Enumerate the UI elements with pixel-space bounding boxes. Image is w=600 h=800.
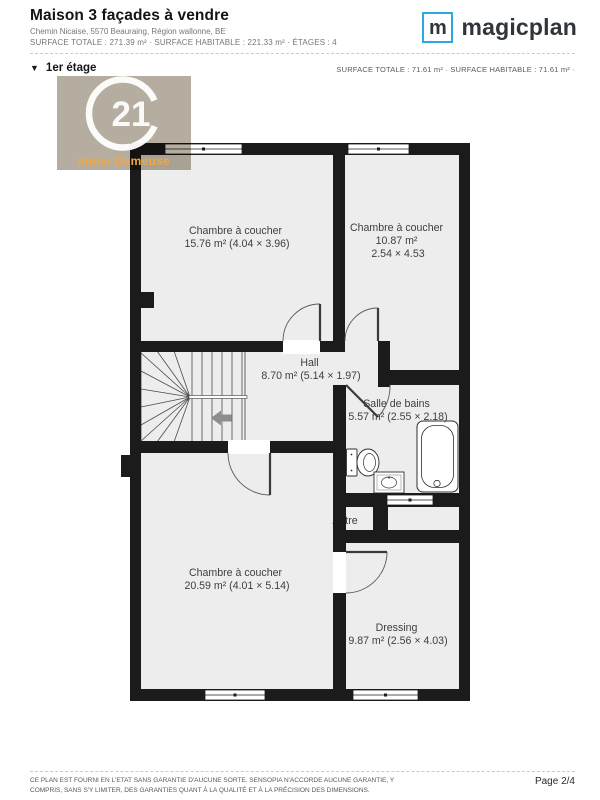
property-address: Chemin Nicaise, 5570 Beauraing, Région w… <box>30 27 226 36</box>
footer-separator <box>30 771 575 772</box>
sink-icon <box>374 472 404 493</box>
window-icon <box>348 144 409 154</box>
room-label-bedroom-bottom-left: Chambre à coucher 20.59 m² (4.01 × 5.14) <box>184 567 289 592</box>
window-icon <box>387 495 433 505</box>
footer-disclaimer: CE PLAN EST FOURNI EN L'ETAT SANS GARANT… <box>30 776 410 795</box>
disclaimer-line-2: COMPRIS, SANS S'Y LIMITER, DES GARANTIES… <box>30 786 410 796</box>
magicplan-logo: m magicplan <box>422 12 577 43</box>
room-label-bedroom-top-left: Chambre à coucher 15.76 m² (4.04 × 3.96) <box>184 225 289 250</box>
wall-pier <box>141 292 154 308</box>
magicplan-m-icon: m <box>422 12 453 43</box>
floor-section-toggle[interactable]: ▼ 1er étage <box>30 62 96 74</box>
wall-exterior-stub <box>121 455 130 477</box>
window-icon <box>205 690 265 700</box>
wall-left <box>130 143 141 701</box>
page-title: Maison 3 façades à vendre <box>30 7 229 25</box>
room-label-bathroom: Salle de bains 5.57 m² (2.55 × 2.18) <box>348 398 447 423</box>
watermark-agency-name: Immo Demeuse <box>78 154 170 168</box>
wall-bathroom-top <box>390 370 459 385</box>
bathtub-icon <box>417 421 458 492</box>
chevron-down-icon: ▼ <box>30 63 39 73</box>
wall-dressing-top <box>333 530 459 543</box>
magicplan-wordmark: magicplan <box>461 14 577 41</box>
century21-number: 21 <box>112 95 151 134</box>
floor-section-label: 1er étage <box>46 62 97 74</box>
property-surfaces: SURFACE TOTALE : 271.39 m² · SURFACE HAB… <box>30 38 337 47</box>
header-separator <box>30 53 575 54</box>
wall-bedrooms-divider <box>333 143 345 348</box>
window-icon <box>353 690 418 700</box>
wall-right <box>459 143 470 701</box>
disclaimer-line-1: CE PLAN EST FOURNI EN L'ETAT SANS GARANT… <box>30 776 410 786</box>
wall-bottom <box>130 689 470 701</box>
century21-seal: 21 Immo Demeuse <box>57 76 191 170</box>
page-number: Page 2/4 <box>535 776 575 787</box>
wall-connector <box>378 341 390 387</box>
floor-surfaces: SURFACE TOTALE : 71.61 m² · SURFACE HABI… <box>336 65 575 74</box>
